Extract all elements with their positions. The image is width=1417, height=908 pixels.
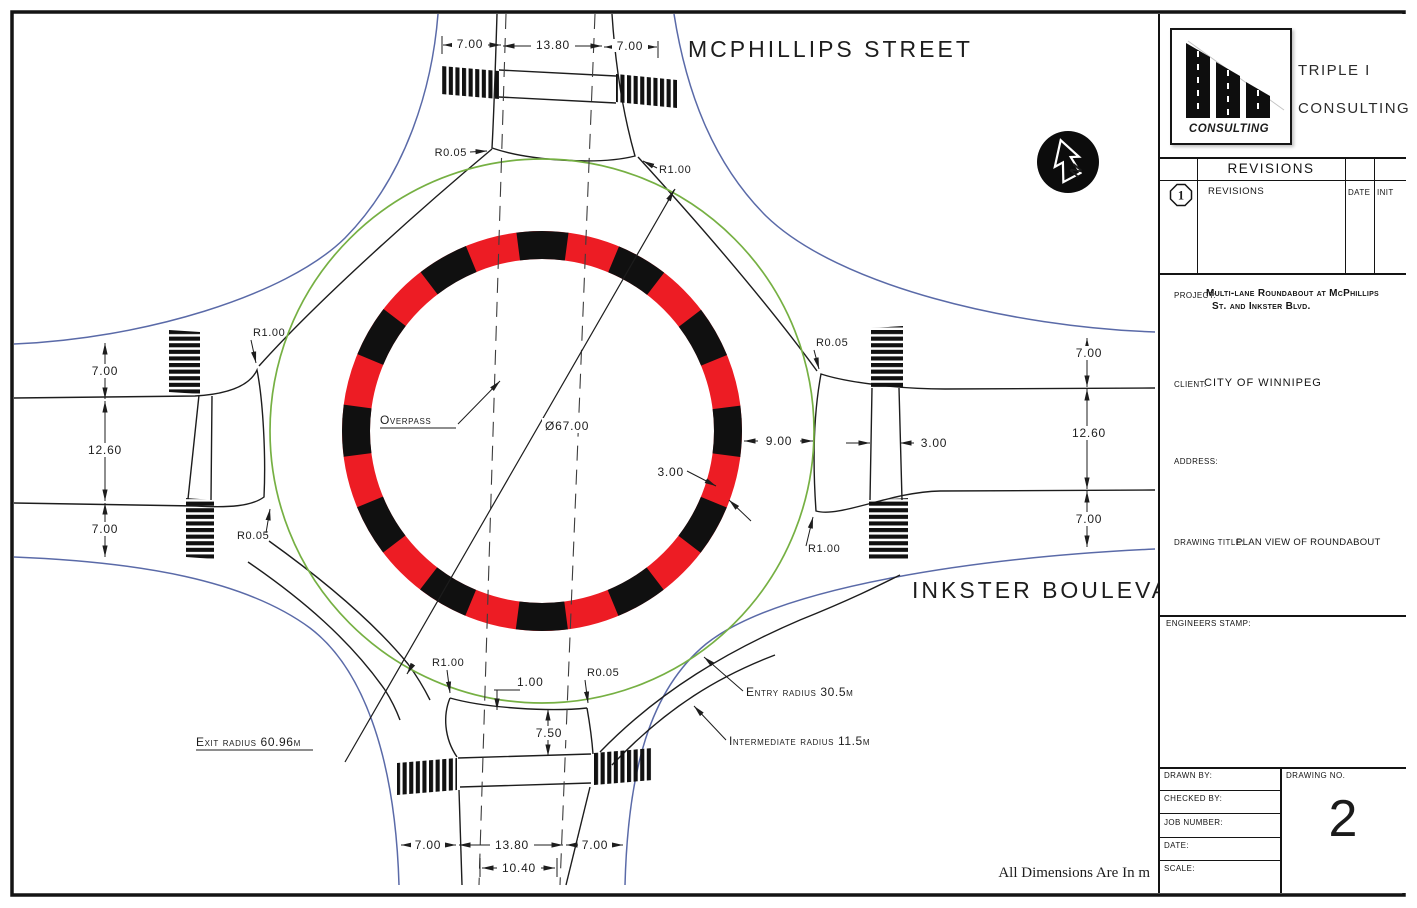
crosswalk-east-top [871,326,903,389]
crosswalk-corridor-south [458,754,591,787]
callout-entry-radius: Entry radius 30.5m [746,685,853,699]
dim-north-right: 7.00 [617,39,644,53]
median-north [492,14,635,161]
median-south-left [459,790,462,885]
dim-west-mid: 12.60 [88,443,122,457]
dim-west-top: 7.00 [92,364,119,378]
diameter-label: Ø67.00 [545,419,589,433]
dim-east-top: 7.00 [1076,346,1103,360]
dim-island-length: 7.50 [536,726,563,740]
title-block: CONSULTING TRIPLE I CONSULTING REVISIONS… [1158,14,1406,893]
north-arrow-icon: N [1037,131,1099,193]
road-edge-nw [14,14,438,344]
revision-number: 1 [1178,189,1184,203]
revision-row-label: REVISIONS [1208,186,1264,197]
date-column-header: DATE [1348,188,1370,197]
island-south-right [587,708,593,754]
crosswalk-south-right [594,748,653,785]
logo-caption: CONSULTING [1189,123,1269,135]
callout-exit-radius: Exit radius 60.96m [196,735,301,749]
street-label-mcphillips: MCPHILLIPS STREET [688,36,973,62]
engineers-stamp-label: ENGINEERS STAMP: [1166,619,1251,628]
median-west [14,370,265,507]
road-edge-sw [14,557,399,885]
dim-south-right: 7.00 [582,838,609,852]
dim-south-inner: 10.40 [502,861,536,875]
radius-label-east-small: R0.05 [816,337,848,349]
radius-label-north-small: R0.05 [435,147,467,159]
dim-north-left: 7.00 [457,37,484,51]
company-logo: CONSULTING [1170,28,1292,145]
scale-label: SCALE: [1164,864,1195,873]
drawing-title-label: DRAWING TITLE: [1174,538,1244,547]
dim-south-left: 7.00 [415,838,442,852]
dim-island-gap: 1.00 [517,675,544,689]
revision-number-badge: 1 [1169,183,1193,207]
dim-north-mid: 13.80 [536,38,570,52]
crosswalk-west-top [169,330,200,394]
job-number-label: JOB NUMBER: [1164,818,1223,827]
lane-lines [14,14,1155,885]
radius-label-south-large: R1.00 [432,657,464,669]
median-south-right [566,787,590,885]
units-note: All Dimensions Are In m [998,865,1150,881]
drawing-number: 2 [1280,789,1406,849]
client-label: CLIENT: [1174,380,1207,389]
crosswalk-east-bottom [869,498,908,561]
corner-arc-se-intermediate [612,655,775,765]
crosswalk-west-bottom [186,498,214,559]
dim-east-bottom: 7.00 [1076,512,1103,526]
drawn-by-label: DRAWN BY: [1164,771,1212,780]
island-south-left [446,698,457,757]
dim-circulating-width: 9.00 [766,434,793,448]
drawing-title-value: PLAN VIEW OF ROUNDABOUT [1236,537,1381,548]
project-value: Multi-lane Roundabout at McPhillips St. … [1206,287,1398,313]
crosswalk-south-left [397,758,457,795]
revisions-header: REVISIONS [1197,161,1345,176]
radius-label-west-small: R0.05 [237,530,269,542]
crosswalk-corridor-north [499,70,616,103]
island-south-top [450,698,587,710]
dim-ring-width: 3.00 [657,465,684,479]
radius-label-south-small: R0.05 [587,667,619,679]
dim-east-mid: 12.60 [1072,426,1106,440]
crosswalk-corridor-east [870,388,902,500]
diameter-dimension: Ø67.00 [345,189,675,762]
radius-label-east-large: R1.00 [808,543,840,555]
dimension-labels: 7.00 13.80 7.00 7.00 13.80 7.00 10.40 7.… [88,37,1106,875]
drawing-no-label: DRAWING NO. [1286,771,1345,780]
logo-road-3 [1246,82,1270,118]
date-label: DATE: [1164,841,1189,850]
radius-label-north-large: R1.00 [659,164,691,176]
init-column-header: INIT [1377,188,1394,197]
dimension-lines [105,36,1087,877]
address-label: ADDRESS: [1174,457,1218,466]
dim-south-mid: 13.80 [495,838,529,852]
checked-by-label: CHECKED BY: [1164,794,1222,803]
dim-crosswalk-width: 3.00 [921,436,948,450]
company-name-line1: TRIPLE I [1298,62,1371,79]
crosswalk-corridor-west [188,395,212,500]
company-name-line2: CONSULTING [1298,100,1410,117]
callout-intermediate-radius: Intermediate radius 11.5m [729,734,870,748]
callout-overpass: Overpass [380,413,431,427]
dim-west-bottom: 7.00 [92,522,119,536]
client-value: CITY OF WINNIPEG [1204,377,1322,389]
drawing-sheet: Ø67.00 [0,0,1417,908]
radius-label-west-large: R1.00 [253,327,285,339]
crosswalk-north-left [441,66,499,99]
crosswalk-north-right [616,74,677,108]
